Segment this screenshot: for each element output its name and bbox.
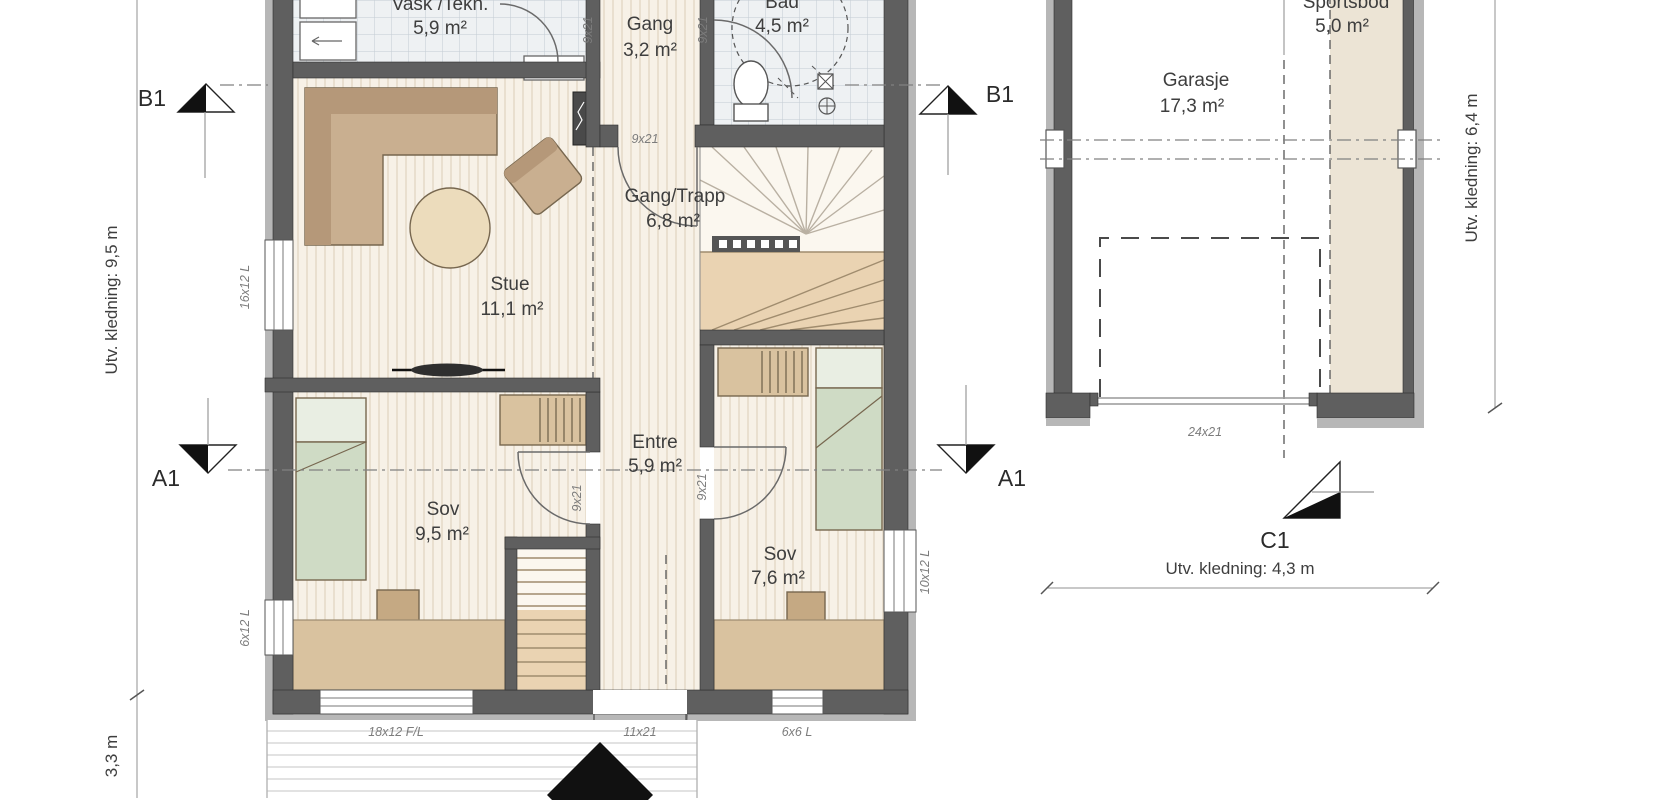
entrance-door-opening bbox=[593, 690, 687, 714]
dresser bbox=[787, 592, 825, 624]
label-door-sov2: 9x21 bbox=[695, 473, 709, 500]
label-sov2-name: Sov bbox=[764, 544, 797, 565]
label-garasje-name: Garasje bbox=[1163, 70, 1230, 91]
label-door-sov1: 9x21 bbox=[570, 484, 584, 511]
label-door-corridor: 9x21 bbox=[631, 132, 658, 146]
section-bracket-left bbox=[1046, 130, 1064, 168]
marker-a1-right: A1 bbox=[938, 385, 1026, 491]
marker-b1-right-label: B1 bbox=[986, 81, 1014, 107]
label-gangtrapp-name: Gang/Trapp bbox=[625, 186, 726, 207]
closet-band bbox=[714, 620, 884, 690]
marker-b1-left-label: B1 bbox=[138, 85, 166, 111]
label-entrance-door: 11x21 bbox=[623, 725, 656, 739]
label-entre-area: 5,9 m² bbox=[628, 456, 682, 477]
wardrobe bbox=[500, 395, 586, 445]
bed bbox=[296, 442, 366, 580]
window-sov1-bottom bbox=[320, 690, 473, 714]
marker-c1: C1 bbox=[1260, 462, 1374, 553]
dim-left-lower: 3,3 m bbox=[102, 735, 121, 778]
stairwell-down bbox=[517, 549, 586, 690]
dim-left-main: Utv. kledning: 9,5 m bbox=[102, 226, 121, 375]
dim-garage-right: Utv. kledning: 6,4 m bbox=[1462, 94, 1481, 243]
coffee-table bbox=[410, 188, 490, 268]
label-sportsbod-name: Sportsbod bbox=[1303, 0, 1390, 13]
label-window-stue-left: 16x12 L bbox=[238, 265, 252, 310]
label-vask-area: 5,9 m² bbox=[413, 18, 467, 39]
marker-b1-left: B1 bbox=[138, 84, 234, 178]
window-sov2-right bbox=[884, 530, 916, 612]
label-bad-name: Bad bbox=[765, 0, 799, 13]
washer bbox=[300, 0, 356, 18]
label-sov1-name: Sov bbox=[427, 499, 460, 520]
label-gang-area: 3,2 m² bbox=[623, 40, 677, 61]
label-window-sov1-left: 6x12 L bbox=[238, 609, 252, 647]
label-vask-name: Vask /Tekn. bbox=[392, 0, 489, 15]
dresser bbox=[377, 590, 419, 624]
marker-a1-left-label: A1 bbox=[152, 465, 180, 491]
sportsbod-floor bbox=[1330, 0, 1403, 393]
closet-band bbox=[293, 620, 505, 690]
window-sov2-bottom bbox=[772, 690, 823, 714]
tv bbox=[411, 364, 483, 377]
marker-c1-label: C1 bbox=[1260, 527, 1289, 553]
label-gang-name: Gang bbox=[627, 14, 673, 35]
dim-garage-bottom: Utv. kledning: 4,3 m bbox=[1166, 559, 1315, 578]
floor-plan-drawing: B1 B1 A1 A1 C1 Utv. kle bbox=[0, 0, 1670, 800]
label-sov1-area: 9,5 m² bbox=[415, 524, 469, 545]
marker-a1-right-label: A1 bbox=[998, 465, 1026, 491]
label-window-sov2-bottom: 6x6 L bbox=[782, 725, 813, 739]
label-entre-name: Entre bbox=[632, 432, 677, 453]
label-bad-area: 4,5 m² bbox=[755, 16, 809, 37]
bed bbox=[816, 388, 882, 530]
marker-b1-right: B1 bbox=[920, 81, 1014, 175]
label-gangtrapp-area: 6,8 m² bbox=[646, 211, 700, 232]
toilet-bowl bbox=[734, 61, 768, 107]
label-window-sov2-right: 10x12 L bbox=[918, 550, 932, 595]
label-sov2-area: 7,6 m² bbox=[751, 568, 805, 589]
label-door-gang-right: 9x21 bbox=[696, 16, 710, 43]
stair-lower-treads bbox=[700, 252, 884, 330]
label-stue-name: Stue bbox=[490, 274, 529, 295]
section-bracket-right bbox=[1398, 130, 1416, 168]
label-stue-area: 11,1 m² bbox=[480, 299, 543, 320]
label-garage-door: 24x21 bbox=[1187, 425, 1222, 439]
label-garasje-area: 17,3 m² bbox=[1160, 96, 1224, 117]
label-sportsbod-area: 5,0 m² bbox=[1315, 16, 1369, 37]
bed-pillow bbox=[296, 398, 366, 442]
toilet-tank bbox=[734, 104, 768, 121]
marker-a1-left: A1 bbox=[152, 398, 236, 491]
bed-pillow bbox=[816, 348, 882, 388]
garage-plan bbox=[1040, 0, 1440, 458]
house-plan bbox=[265, 0, 916, 800]
label-door-gang-left: 9x21 bbox=[581, 16, 595, 43]
window-sov1-left bbox=[265, 600, 293, 655]
label-window-sov1-bottom: 18x12 F/L bbox=[368, 725, 424, 739]
window-stue-left bbox=[265, 240, 293, 330]
floor-plan-page: B1 B1 A1 A1 C1 Utv. kle bbox=[0, 0, 1670, 800]
